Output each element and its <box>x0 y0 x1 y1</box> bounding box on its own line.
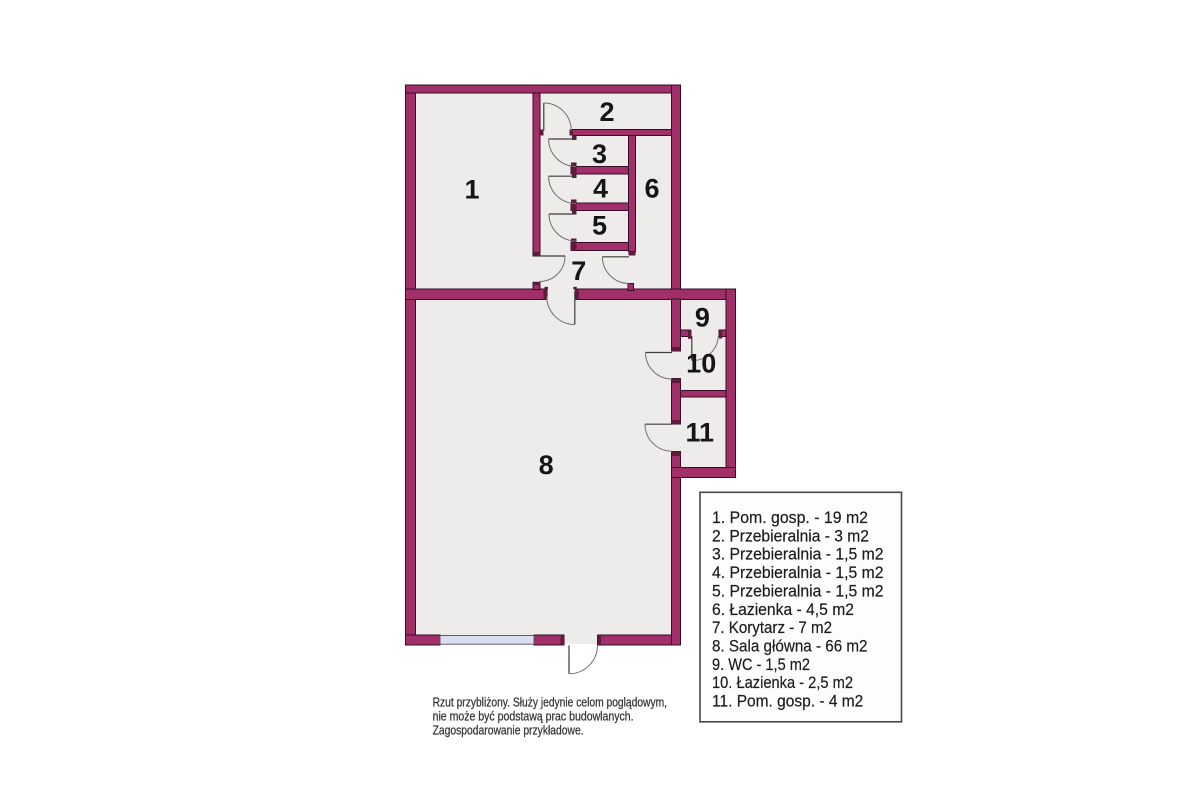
svg-text:11: 11 <box>686 418 715 448</box>
svg-text:6: 6 <box>644 174 659 204</box>
svg-text:9. WC - 1,5 m2: 9. WC - 1,5 m2 <box>712 655 810 674</box>
svg-text:7: 7 <box>571 256 586 286</box>
svg-text:2. Przebieralnia - 3 m2: 2. Przebieralnia - 3 m2 <box>712 526 869 545</box>
svg-text:8: 8 <box>539 450 554 480</box>
svg-text:9: 9 <box>695 302 710 332</box>
svg-text:1. Pom. gosp. - 19 m2: 1. Pom. gosp. - 19 m2 <box>712 508 868 527</box>
svg-text:10: 10 <box>686 349 716 379</box>
svg-text:3: 3 <box>592 139 607 169</box>
svg-text:5: 5 <box>592 211 607 241</box>
svg-text:Zagospodarowanie przykładowe.: Zagospodarowanie przykładowe. <box>433 723 584 738</box>
svg-text:3. Przebieralnia - 1,5 m2: 3. Przebieralnia - 1,5 m2 <box>712 545 884 564</box>
svg-text:4. Przebieralnia - 1,5 m2: 4. Przebieralnia - 1,5 m2 <box>712 563 884 582</box>
svg-text:Rzut przybliżony. Służy jedyni: Rzut przybliżony. Służy jedynie celom po… <box>433 695 667 710</box>
svg-text:11. Pom. gosp. - 4 m2: 11. Pom. gosp. - 4 m2 <box>712 692 863 711</box>
svg-text:1: 1 <box>464 175 479 205</box>
svg-text:nie może być podstawą prac bud: nie może być podstawą prac budowlanych. <box>433 709 634 724</box>
svg-text:4: 4 <box>593 174 608 204</box>
svg-text:10. Łazienka - 2,5 m2: 10. Łazienka - 2,5 m2 <box>712 673 853 692</box>
svg-text:7. Korytarz - 7 m2: 7. Korytarz - 7 m2 <box>712 618 832 637</box>
svg-text:6. Łazienka - 4,5 m2: 6. Łazienka - 4,5 m2 <box>712 600 854 619</box>
svg-text:8. Sala główna - 66 m2: 8. Sala główna - 66 m2 <box>712 637 868 656</box>
svg-text:2: 2 <box>599 97 614 127</box>
svg-text:5. Przebieralnia - 1,5 m2: 5. Przebieralnia - 1,5 m2 <box>712 581 884 600</box>
